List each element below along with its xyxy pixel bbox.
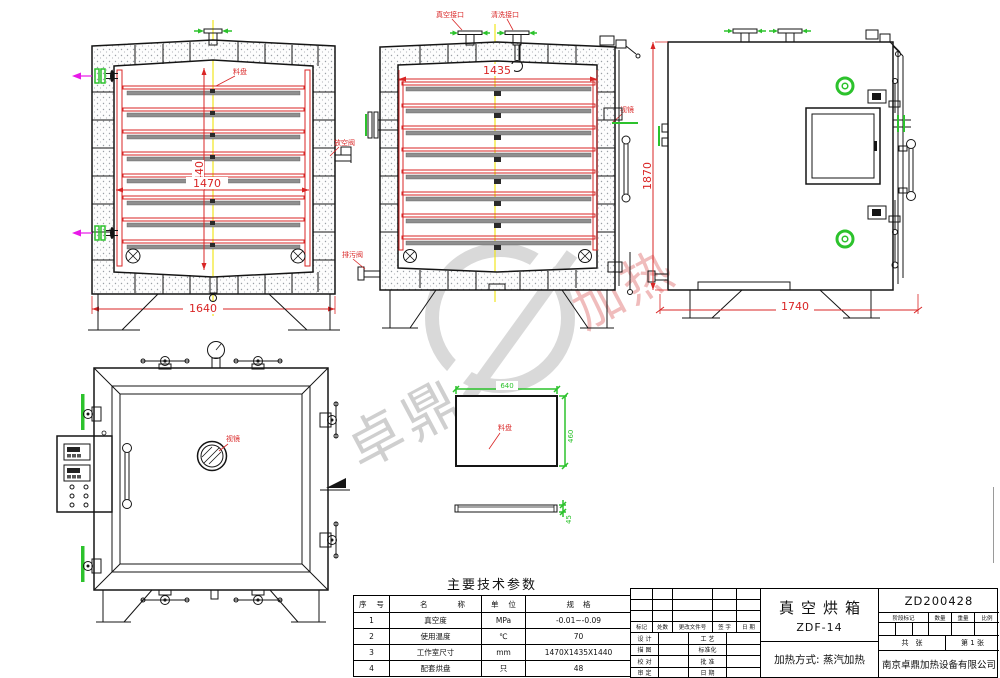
green-port-bottom [837,231,853,247]
stage-header-weight: 重量 [952,613,975,622]
rev-header-sign: 签 字 [713,622,737,633]
table-row: 3 工作室尺寸 mm 1470X1435X1440 [354,645,632,661]
tray-detail-view: 料盘 640 460 45 [453,381,575,524]
dim-elev-width: 1740 [656,294,922,314]
svg-text:1470: 1470 [193,177,221,190]
tray-side-view [455,505,557,512]
cart-wheels [126,249,305,263]
sig-design: 设 计 [631,633,659,645]
stage-header-qty: 数量 [929,613,952,622]
dim-side-inner-width: 1435 [399,64,597,84]
heating-method: 加热方式: 蒸汽加热 [761,642,878,677]
sig-check: 校 对 [631,656,659,668]
product-model: ZDF-14 [796,621,842,634]
side-elevation-view: 1870 1740 [641,29,922,318]
green-port-top [837,78,853,94]
row4-unit: 只 [482,661,526,677]
row4-name: 配套烘盘 [390,661,482,677]
pressure-gauge [208,342,225,369]
sight-glass: 视镜 [198,434,241,471]
dim-tray-width: 460 [559,393,575,469]
door-hinges-elevation [866,30,911,268]
sheet-total: 共 张 [879,636,946,650]
row3-spec: 1470X1435X1440 [526,645,632,661]
col-header-name: 名称 [390,596,482,613]
door-front-view: 视镜 [57,342,350,623]
rev-header-count: 处数 [653,622,673,633]
dim-tray-height: 45 [559,500,573,524]
title-block-name-area: 真空烘箱 ZDF-14 加热方式: 蒸汽加热 [761,589,879,677]
stage-header-scale: 比例 [975,613,999,622]
control-panel [57,431,112,512]
left-edge-fitting [659,124,668,146]
row4-spec: 48 [526,661,632,677]
front-section-view: 放空阀 料盘 1440 1470 1640 [72,20,355,330]
table-row: 4 配套烘盘 只 48 [354,661,632,677]
params-table-title: 主要技术参数 [353,576,631,595]
temp-controller-2 [64,465,90,481]
row1-no: 1 [354,613,390,629]
door-pull-handle [123,444,132,509]
company-name: 南京卓鼎加热设备有限公司 [879,651,999,677]
svg-text:640: 640 [500,382,513,390]
row2-unit: ℃ [482,629,526,645]
svg-text:1640: 1640 [189,302,217,315]
params-table: 主要技术参数 序 号 名称 单 位 规格 1 真空度 MPa -0.01~-0.… [353,576,631,677]
table-row: 2 使用温度 ℃ 70 [354,629,632,645]
engineering-drawing-sheet: .k{stroke:#151515;fill:none;stroke-width… [0,0,1000,678]
product-name: 真空烘箱 [772,597,867,618]
vacuum-port-label: 真空接口 [436,10,464,19]
sig-date: 日 期 [689,668,727,678]
wash-port-label: 清洗接口 [491,10,519,19]
door-handle-elevation [899,140,916,201]
temp-controller-1 [64,444,90,460]
sig-trace: 描 图 [631,645,659,657]
drain-valve-fitting: 排污阀 [342,250,380,280]
drawing-number: ZD200428 [879,594,999,608]
elev-nozzles [724,29,811,42]
svg-text:1435: 1435 [483,64,511,77]
row2-spec: 70 [526,629,632,645]
rev-header-date: 日 期 [737,622,761,633]
col-header-spec: 规格 [526,596,632,613]
svg-text:45: 45 [565,515,573,524]
title-block: 标记 处数 更改文件号 签 字 日 期 设 计 工 艺 描 图 标准化 校 对 … [630,588,998,678]
row1-unit: MPa [482,613,526,629]
tray-label-detail: 料盘 [498,423,512,432]
rev-header-docno: 更改文件号 [673,622,713,633]
title-block-number-area: ZD200428 阶段标记 数量 重量 比例 共 张 第 1 张 南京卓鼎加热设… [879,589,999,677]
row2-name: 使用温度 [390,629,482,645]
row3-unit: mm [482,645,526,661]
row3-name: 工作室尺寸 [390,645,482,661]
panel-buttons [70,485,88,507]
svg-text:460: 460 [567,430,575,443]
svg-text:1870: 1870 [641,162,654,190]
sig-standard: 标准化 [689,645,727,657]
svg-text:1740: 1740 [781,300,809,313]
side-section-view: 真空接口 清洗接口 1435 视镜 [342,10,640,328]
row1-name: 真空度 [390,613,482,629]
tray-shelves-side [402,82,595,250]
sight-glass-label-front: 视镜 [226,434,240,443]
vent-valve-label: 放空阀 [334,138,355,147]
row1-spec: -0.01~-0.09 [526,613,632,629]
stage-header-mark: 阶段标记 [879,613,929,622]
params-header-row: 序 号 名称 单 位 规格 [354,596,632,613]
sig-approve: 批 准 [689,656,727,668]
sig-review: 审 定 [631,668,659,678]
junction-box [806,108,880,184]
row3-no: 3 [354,645,390,661]
col-header-no: 序 号 [354,596,390,613]
row2-no: 2 [354,629,390,645]
col-header-unit: 单 位 [482,596,526,613]
tray-label-front: 料盘 [233,67,247,76]
rev-header-mark: 标记 [631,622,653,633]
sheet-number: 第 1 张 [946,636,999,650]
door-latch [320,478,350,490]
sig-process: 工 艺 [689,633,727,645]
title-block-revision-area: 标记 处数 更改文件号 签 字 日 期 设 计 工 艺 描 图 标准化 校 对 … [631,589,761,677]
table-row: 1 真空度 MPa -0.01~-0.09 [354,613,632,629]
row4-no: 4 [354,661,390,677]
drain-valve-label: 排污阀 [342,250,363,259]
